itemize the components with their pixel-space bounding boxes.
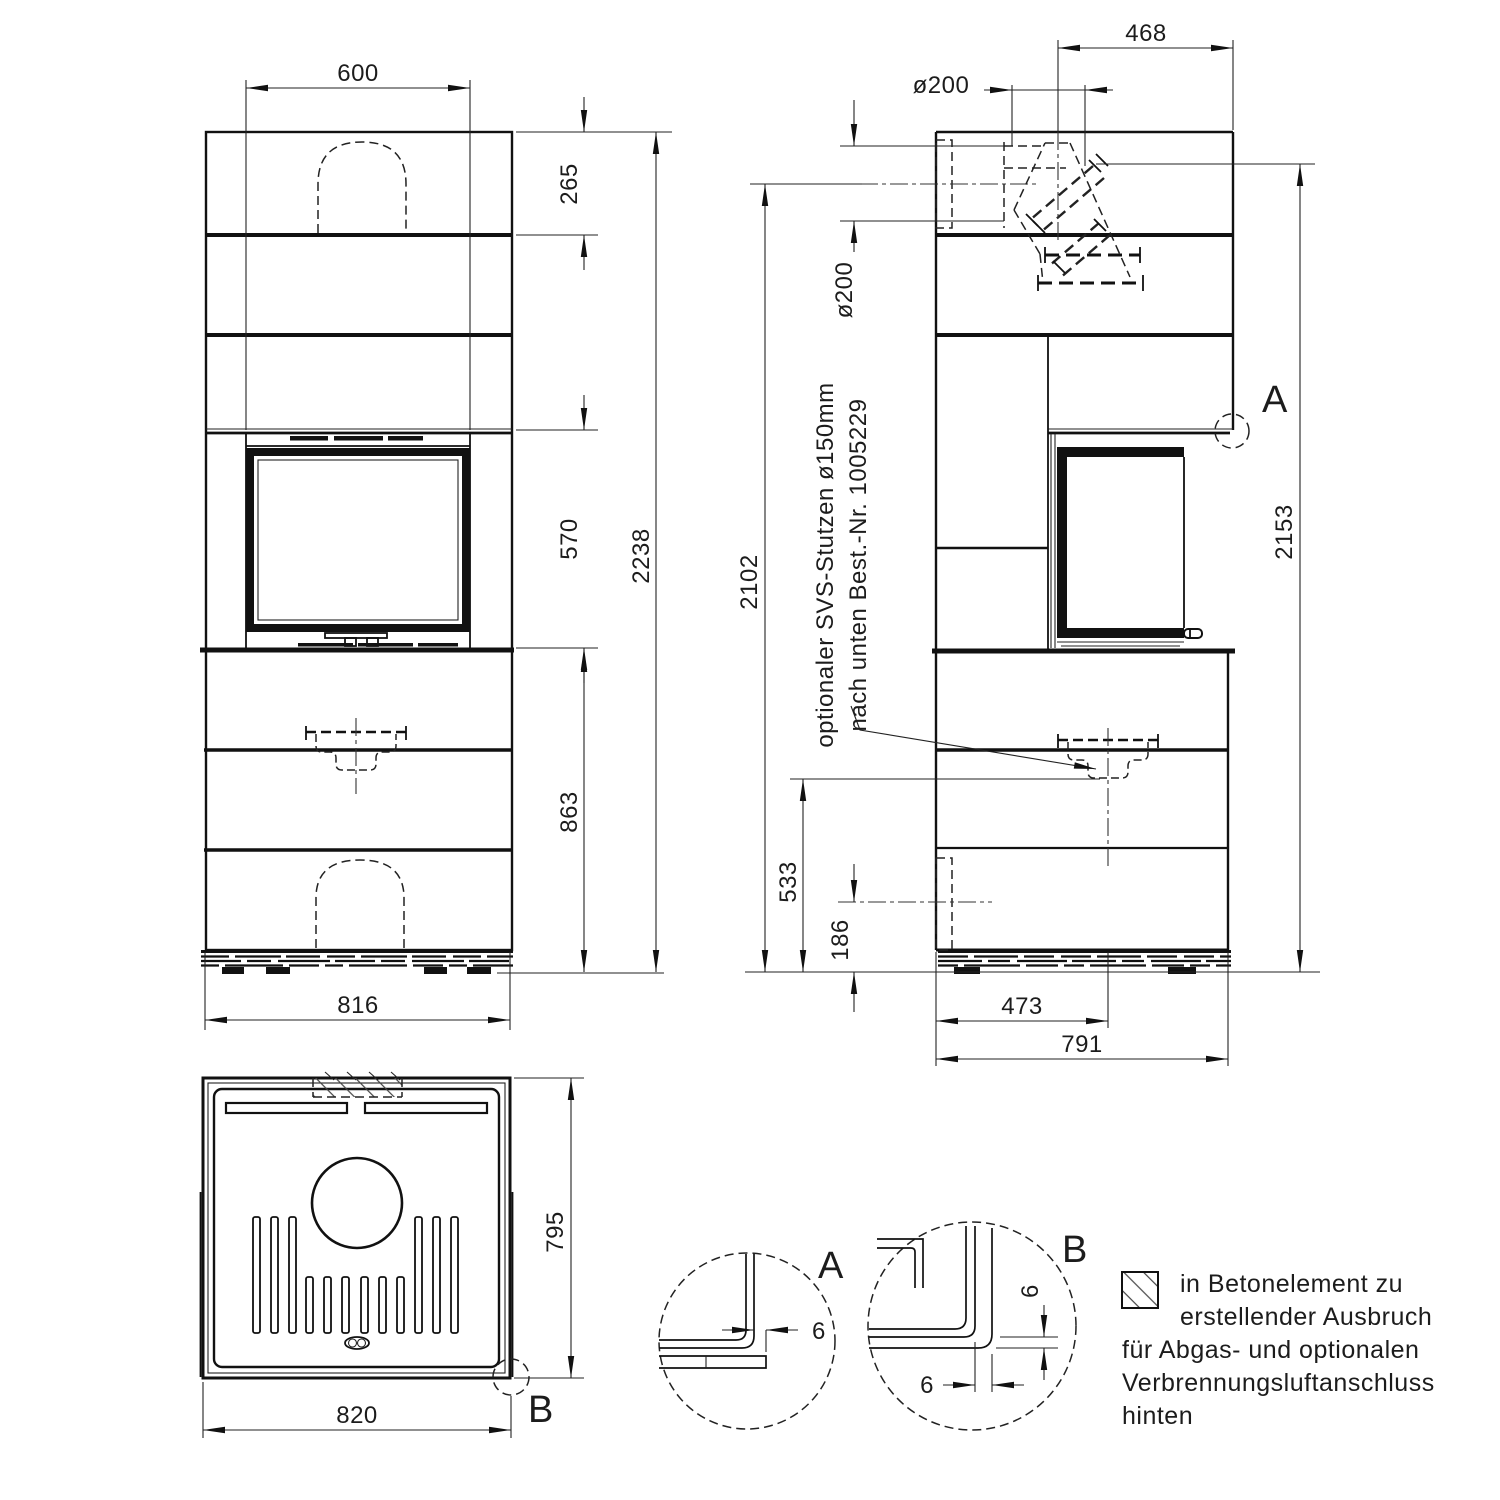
detail-a-panel-inner [659, 1254, 746, 1340]
front-foot [266, 967, 290, 974]
front-upper-cutout-hatched [318, 142, 406, 233]
side-door-frame-top [1057, 447, 1184, 457]
technical-drawing-page: 600 265 570 863 2238 816 [0, 0, 1500, 1500]
dim-top-width: 820 [336, 1402, 378, 1429]
dim-side-height-rear-outlet: 2102 [736, 554, 763, 609]
dim-front-door-height: 570 [556, 518, 583, 560]
dim-front-total-height: 2238 [628, 528, 655, 583]
side-door-hinge [1184, 629, 1202, 638]
detail-b-label: B [1062, 1229, 1088, 1271]
legend-hatch-icon [1122, 1272, 1158, 1308]
front-door-vent-slat [334, 436, 383, 441]
front-door-bottom-slat [358, 643, 413, 647]
dim-side-rear-outlet-diameter: ø200 [831, 262, 858, 319]
detail-b-corner-outer [877, 1248, 915, 1288]
legend-text-line5: hinten [1122, 1402, 1193, 1430]
dim-front-lower-height: 863 [556, 791, 583, 833]
dim-top-depth: 795 [542, 1211, 569, 1253]
front-lower-cutout-hatched [316, 860, 404, 948]
detail-a-view: A 6 [659, 1245, 844, 1429]
note-svs-stutzen-line1: optionaler SVS-Stutzen ø150mm [812, 382, 839, 747]
legend-text-line3: für Abgas- und optionalen [1122, 1336, 1419, 1364]
dim-detail-a-gap: 6 [812, 1318, 826, 1345]
front-foot [424, 967, 447, 974]
side-door-frame-bar [1057, 447, 1067, 638]
front-door-vent-slat [290, 436, 328, 441]
top-rear-vent-slot [226, 1103, 347, 1113]
dim-side-flue-offset: 468 [1125, 20, 1167, 47]
detail-b-circle [868, 1222, 1076, 1430]
dim-front-base-width: 816 [337, 992, 379, 1019]
top-flue-outlet-circle [312, 1158, 402, 1248]
note-svs-stutzen-line2: nach unten Best.-Nr. 1005229 [845, 399, 872, 732]
dim-detail-b-horizontal-gap: 6 [920, 1372, 934, 1399]
front-foot [222, 967, 244, 974]
dim-side-height-top: 2153 [1271, 504, 1298, 559]
front-foot [467, 967, 491, 974]
dim-side-connector-height: 533 [775, 861, 802, 903]
top-rear-vent-slot [365, 1103, 487, 1113]
front-door-bottom-slat [298, 643, 353, 647]
top-rear-cutout-hatched [313, 1078, 402, 1097]
top-handle-detail [349, 1339, 357, 1347]
dim-side-depth: 791 [1061, 1031, 1103, 1058]
stove-installation-drawing: 600 265 570 863 2238 816 [0, 0, 1500, 1500]
side-foot [954, 967, 980, 974]
top-vent-slots-short [306, 1277, 404, 1333]
front-door-vent-slat [388, 436, 423, 441]
side-lower-wall-cutout-hatched [936, 858, 952, 950]
detail-a-panel-outer [659, 1254, 754, 1348]
side-view: A optionaler SVS-Stutzen ø150mm nach unt… [736, 20, 1320, 1066]
detail-b-corner-inner [877, 1239, 923, 1288]
side-foot [1168, 967, 1196, 974]
note-leader-line [851, 706, 1096, 769]
front-door-frame [250, 452, 466, 628]
detail-a-label: A [818, 1245, 844, 1287]
front-door-bottom-slat [418, 643, 458, 647]
dim-side-connector-offset: 473 [1001, 993, 1043, 1020]
side-door-frame-bottom [1057, 628, 1184, 638]
dim-detail-b-vertical-gap: 6 [1017, 1284, 1044, 1298]
detail-a-ref-label: A [1262, 379, 1288, 421]
detail-b-panel-outer [869, 1228, 992, 1348]
detail-a-circle [659, 1253, 835, 1429]
top-outer-outline [203, 1078, 510, 1378]
front-view: 600 265 570 863 2238 816 [200, 60, 672, 1030]
legend-text-line2: erstellender Ausbruch [1180, 1303, 1432, 1331]
detail-b-panel-inner [869, 1226, 966, 1329]
dim-side-lower-outlet-height: 186 [827, 919, 854, 961]
top-plate-outline [214, 1089, 499, 1367]
top-handle-detail [358, 1339, 366, 1347]
legend-text-line4: Verbrennungsluftanschluss [1122, 1369, 1435, 1397]
dim-front-top-band: 265 [556, 163, 583, 205]
side-flue-elbow-dashed [1014, 143, 1143, 291]
top-vent-slots-long [253, 1217, 458, 1333]
detail-b-panel-mid [869, 1226, 975, 1337]
legend: in Betonelement zu erstellender Ausbruch… [1122, 1270, 1435, 1430]
front-door-glass [258, 460, 458, 620]
detail-a-base-plate [659, 1356, 766, 1368]
dim-front-top-width: 600 [337, 60, 379, 87]
detail-b-ref-label: B [528, 1389, 554, 1431]
legend-text-line1: in Betonelement zu [1180, 1270, 1403, 1298]
top-view: B 795 820 [201, 1072, 585, 1438]
dim-side-flue-diameter-top: ø200 [913, 72, 970, 99]
detail-b-view: B 6 6 [868, 1222, 1088, 1430]
